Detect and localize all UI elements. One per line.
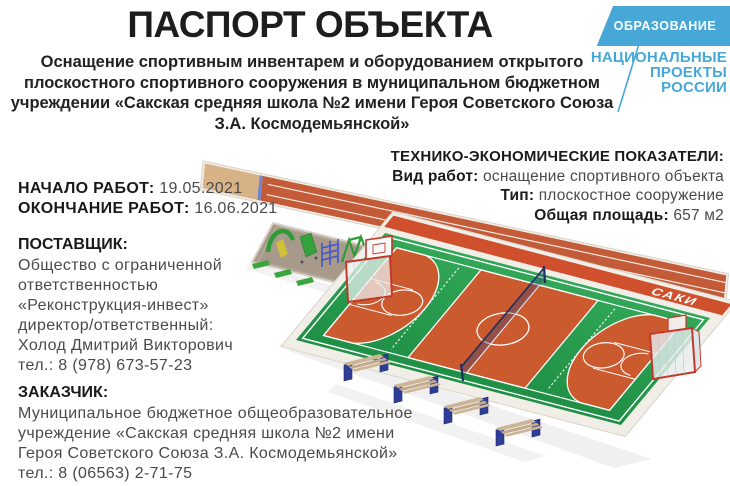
- customer-phone: тел.: 8 (06563) 2-71-75: [18, 464, 413, 484]
- customer-line: учреждение «Сакская средняя школа №2 име…: [18, 424, 413, 444]
- education-program-label: ОБРАЗОВАНИЕ: [614, 19, 717, 33]
- national-projects-logo: ОБРАЗОВАНИЕ НАЦИОНАЛЬНЫЕ ПРОЕКТЫ РОССИИ: [580, 0, 730, 120]
- indicator-label: Вид работ:: [392, 168, 478, 185]
- supplier-line: Общество с ограниченной: [18, 256, 233, 276]
- supplier-label: ПОСТАВЩИК:: [18, 236, 128, 254]
- indicators-block: ТЕХНИКО-ЭКОНОМИЧЕСКИЕ ПОКАЗАТЕЛИ: Вид ра…: [391, 147, 724, 225]
- work-start-label: НАЧАЛО РАБОТ:: [18, 180, 155, 197]
- supplier-line: ответственностью: [18, 276, 233, 296]
- supplier-details: Общество с ограниченной ответственностью…: [18, 256, 233, 376]
- work-finish-value: 16.06.2021: [194, 200, 277, 217]
- customer-line: Муниципальное бюджетное общеобразователь…: [18, 404, 413, 424]
- work-finish-label: ОКОНЧАНИЕ РАБОТ:: [18, 200, 190, 217]
- logo-brand-line: РОССИИ: [591, 80, 727, 95]
- customer-label: ЗАКАЗЧИК:: [18, 384, 108, 402]
- education-program-badge: ОБРАЗОВАНИЕ: [594, 6, 730, 46]
- supplier-line: «Реконструкция-инвест»: [18, 296, 233, 316]
- indicator-row-area: Общая площадь: 657 м2: [391, 206, 724, 226]
- page-subtitle: Оснащение спортивным инвентарем и оборуд…: [10, 52, 614, 134]
- logo-brand-line: ПРОЕКТЫ: [591, 65, 727, 80]
- work-start-value: 19.05.2021: [159, 180, 242, 197]
- indicator-label: Тип:: [500, 187, 534, 204]
- indicator-value: 657 м2: [673, 207, 724, 224]
- supplier-line: директор/ответственный:: [18, 316, 233, 336]
- customer-line: Героя Советского Союза З.А. Космодемьянс…: [18, 444, 413, 464]
- logo-brand-line: НАЦИОНАЛЬНЫЕ: [591, 50, 727, 65]
- indicator-value: плоскостное сооружение: [539, 187, 724, 204]
- supplier-phone: тел.: 8 (978) 673-57-23: [18, 356, 233, 376]
- work-finish-row: ОКОНЧАНИЕ РАБОТ: 16.06.2021: [18, 200, 277, 218]
- indicator-row-work-type: Вид работ: оснащение спортивного объекта: [391, 167, 724, 187]
- customer-details: Муниципальное бюджетное общеобразователь…: [18, 404, 413, 484]
- page-title: ПАСПОРТ ОБЪЕКТА: [8, 4, 612, 46]
- indicator-label: Общая площадь:: [534, 207, 669, 224]
- supplier-line: Холод Дмитрий Викторович: [18, 336, 233, 356]
- indicators-title: ТЕХНИКО-ЭКОНОМИЧЕСКИЕ ПОКАЗАТЕЛИ:: [391, 147, 724, 167]
- logo-brand-text: НАЦИОНАЛЬНЫЕ ПРОЕКТЫ РОССИИ: [591, 50, 727, 95]
- passport-poster: САКИ: [0, 0, 730, 486]
- work-start-row: НАЧАЛО РАБОТ: 19.05.2021: [18, 180, 242, 198]
- indicator-row-type: Тип: плоскостное сооружение: [391, 186, 724, 206]
- indicator-value: оснащение спортивного объекта: [483, 168, 724, 185]
